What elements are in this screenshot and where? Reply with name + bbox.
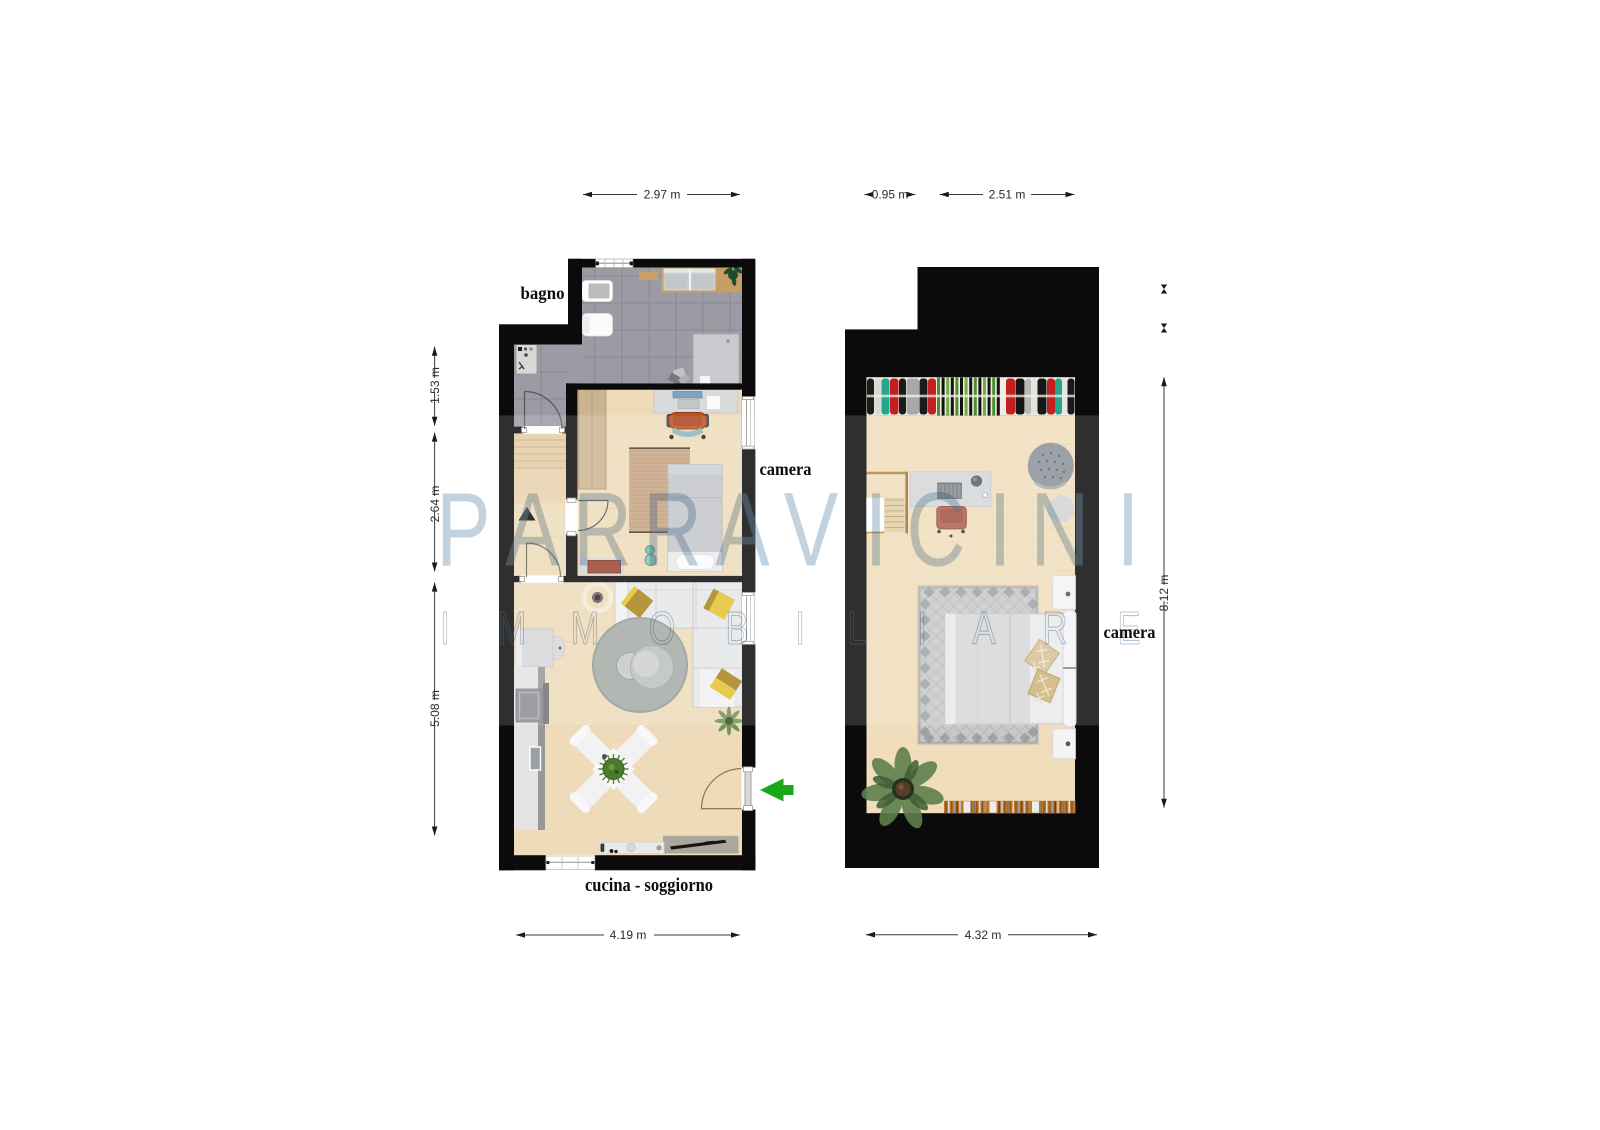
svg-text:B: B [725,602,748,654]
svg-text:2.97 m: 2.97 m [644,188,681,202]
svg-text:M: M [571,602,600,654]
svg-text:A: A [972,602,996,654]
svg-text:bagno: bagno [521,283,565,303]
svg-text:O: O [649,602,676,654]
svg-text:V: V [784,471,839,588]
svg-text:L: L [847,602,866,654]
svg-text:I: I [865,471,888,588]
svg-text:camera: camera [1104,622,1156,642]
svg-text:P: P [436,471,491,588]
svg-text:I: I [795,602,805,654]
svg-text:2.64 m: 2.64 m [428,486,442,523]
svg-text:cucina - soggiorno: cucina - soggiorno [585,876,713,896]
svg-text:R: R [573,471,632,588]
svg-text:R: R [643,471,702,588]
svg-text:8.12 m: 8.12 m [1157,575,1171,612]
svg-text:5.08 m: 5.08 m [428,690,442,727]
svg-text:I: I [1117,471,1140,588]
svg-text:4.19 m: 4.19 m [610,928,647,942]
svg-text:N: N [1030,471,1089,588]
svg-text:M: M [498,602,527,654]
svg-text:A: A [505,471,560,588]
svg-text:2.51 m: 2.51 m [989,188,1026,202]
svg-text:C: C [906,471,965,588]
svg-text:A: A [715,471,770,588]
svg-text:R: R [1043,602,1068,654]
svg-text:camera: camera [760,459,812,479]
svg-text:1.53 m: 1.53 m [428,367,442,404]
svg-text:I: I [989,471,1012,588]
svg-text:I: I [917,602,927,654]
svg-text:0.95 m: 0.95 m [872,188,909,202]
svg-text:I: I [440,602,450,654]
svg-text:4.32 m: 4.32 m [965,928,1002,942]
